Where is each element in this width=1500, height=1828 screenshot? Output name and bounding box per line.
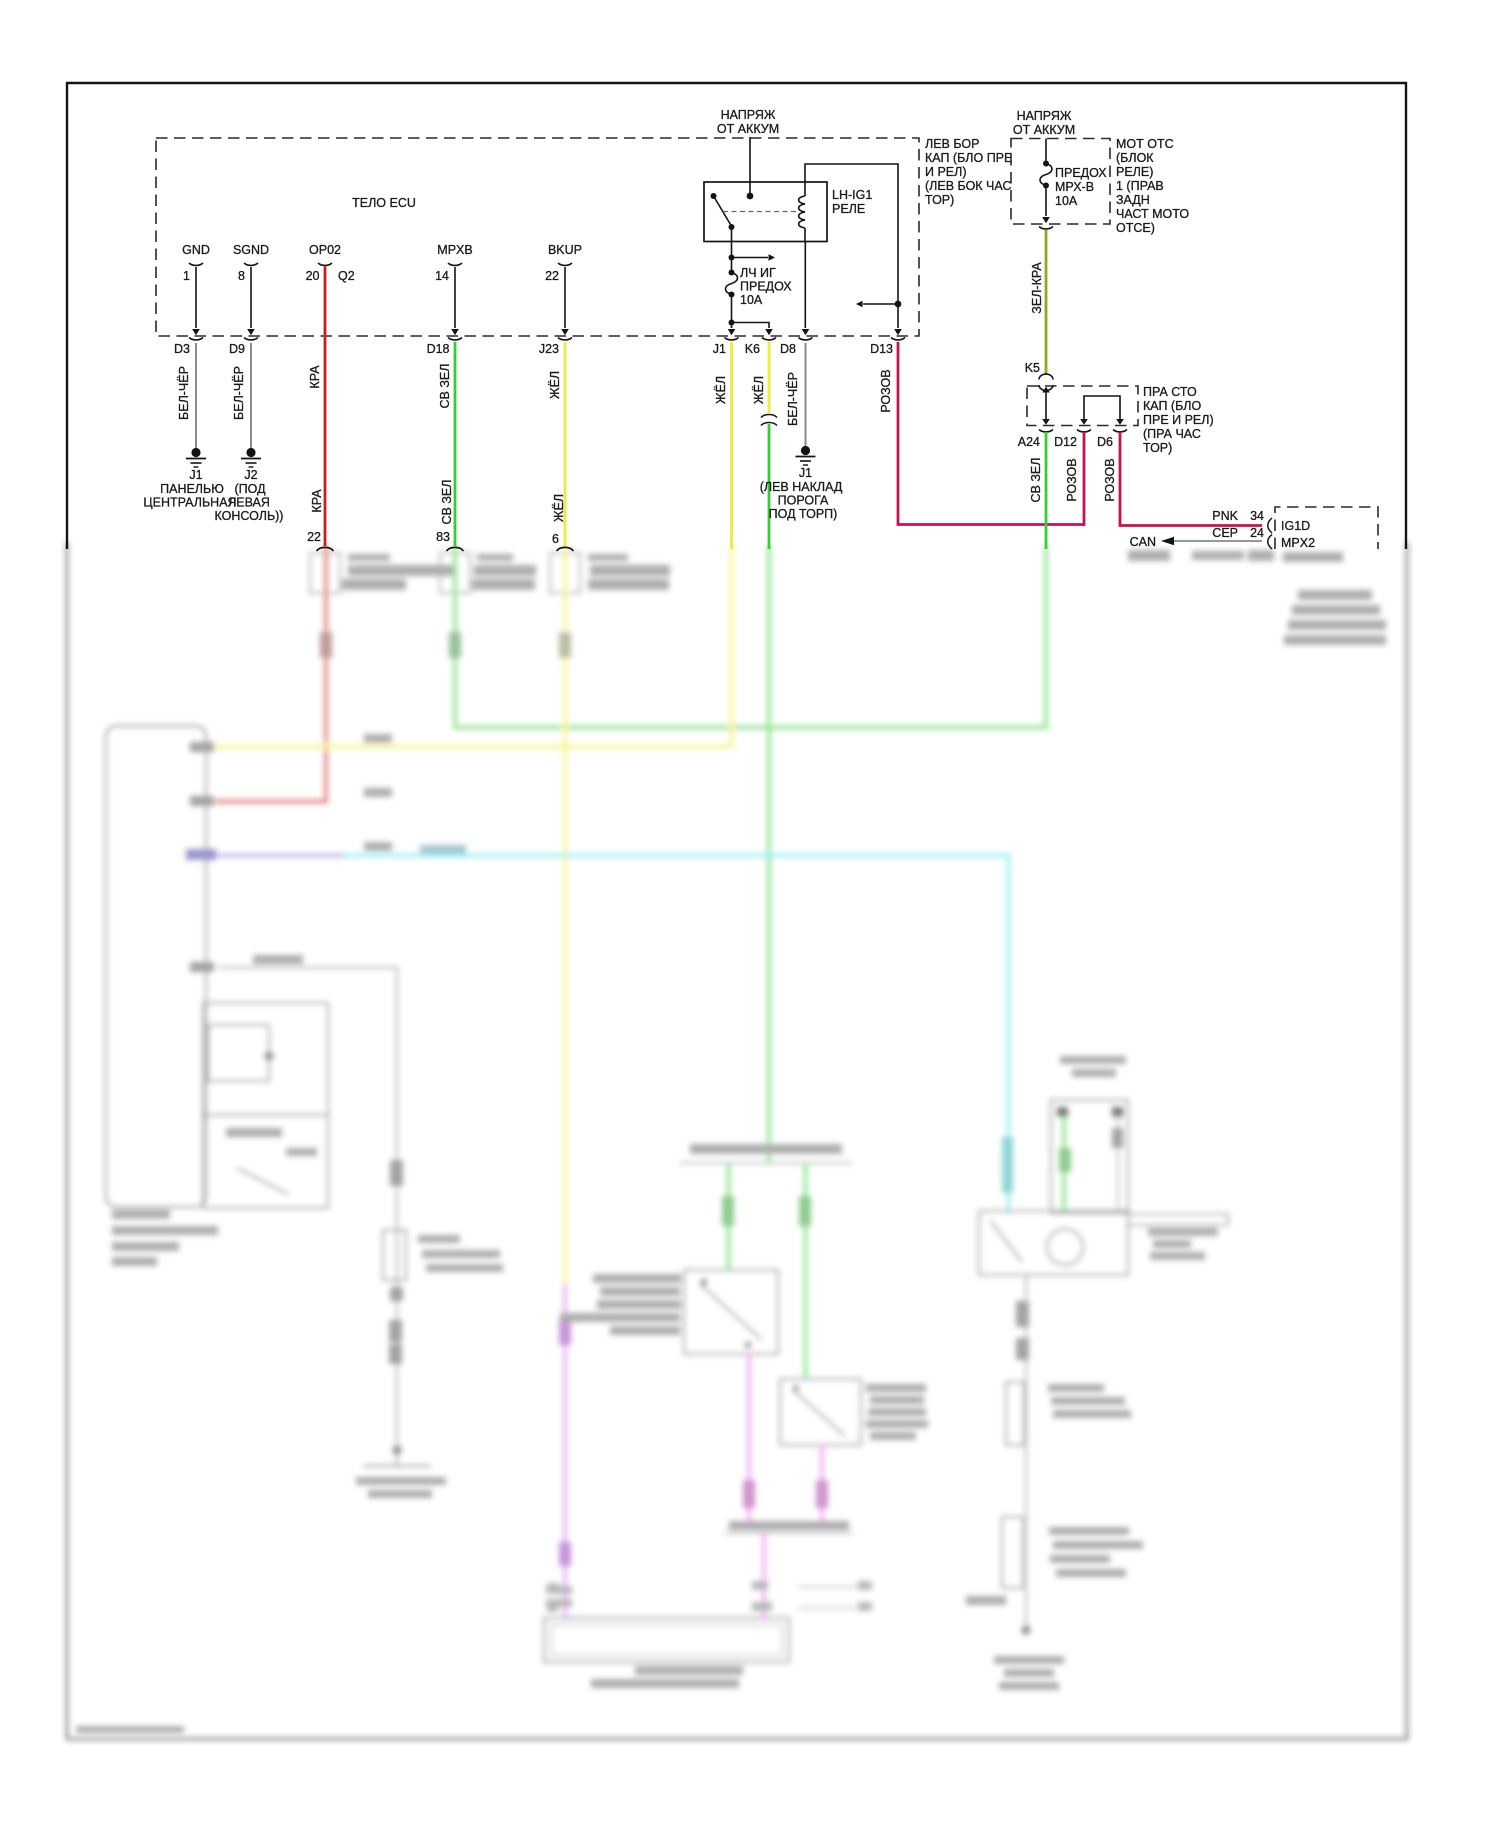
svg-text:КОНСОЛЬ)): КОНСОЛЬ)) [215, 509, 284, 523]
svg-text:83: 83 [436, 530, 450, 544]
svg-text:ЧАСТ МОТО: ЧАСТ МОТО [1116, 207, 1189, 221]
svg-text:ПРА СТО: ПРА СТО [1143, 385, 1197, 399]
svg-text:ТЕЛО ECU: ТЕЛО ECU [352, 196, 416, 210]
svg-text:OP02: OP02 [309, 243, 341, 257]
svg-text:D3: D3 [174, 342, 190, 356]
svg-text:БЕЛ-ЧЁР: БЕЛ-ЧЁР [786, 372, 800, 426]
svg-text:(ПОД: (ПОД [234, 482, 266, 496]
svg-text:D13: D13 [870, 342, 893, 356]
svg-text:ПРЕДОХ: ПРЕДОХ [1055, 166, 1107, 180]
svg-text:ЛЧ ИГ: ЛЧ ИГ [740, 266, 776, 280]
svg-text:ЛЕВ БОР: ЛЕВ БОР [925, 137, 979, 151]
svg-text:КАП (БЛО ПРЕ: КАП (БЛО ПРЕ [925, 151, 1012, 165]
svg-text:И РЕЛ): И РЕЛ) [925, 165, 967, 179]
svg-text:СВ ЗЕЛ: СВ ЗЕЛ [440, 480, 454, 525]
svg-text:CAN: CAN [1130, 535, 1156, 549]
svg-text:ПОД ТОРП): ПОД ТОРП) [769, 507, 838, 521]
svg-text:РЕЛЕ: РЕЛЕ [832, 202, 865, 216]
svg-text:K5: K5 [1025, 361, 1040, 375]
svg-text:ЖЁЛ: ЖЁЛ [714, 376, 728, 404]
svg-text:ПАНЕЛЬЮ: ПАНЕЛЬЮ [160, 482, 224, 496]
svg-text:LH-IG1: LH-IG1 [832, 188, 872, 202]
svg-text:СВ ЗЕЛ: СВ ЗЕЛ [1029, 458, 1043, 503]
svg-text:IG1D: IG1D [1281, 519, 1310, 533]
svg-text:НАПРЯЖ: НАПРЯЖ [1017, 109, 1072, 123]
svg-text:34: 34 [1250, 509, 1264, 523]
svg-text:НАПРЯЖ: НАПРЯЖ [721, 108, 776, 122]
svg-text:ОТСЕ): ОТСЕ) [1116, 221, 1155, 235]
svg-text:ЖЁЛ: ЖЁЛ [548, 371, 562, 399]
svg-text:(ЛЕВ БОК ЧАС: (ЛЕВ БОК ЧАС [925, 179, 1011, 193]
svg-text:MPX2: MPX2 [1281, 536, 1315, 550]
svg-text:ТОР): ТОР) [1143, 441, 1172, 455]
svg-text:ЖЁЛ: ЖЁЛ [552, 494, 566, 522]
svg-text:СВ ЗЕЛ: СВ ЗЕЛ [438, 364, 452, 409]
svg-text:МОТ ОТС: МОТ ОТС [1116, 137, 1174, 151]
svg-text:20: 20 [306, 269, 320, 283]
svg-text:GND: GND [182, 243, 210, 257]
svg-text:ПРЕ И РЕЛ): ПРЕ И РЕЛ) [1143, 413, 1214, 427]
svg-text:D12: D12 [1054, 435, 1077, 449]
svg-text:БЕЛ-ЧЁР: БЕЛ-ЧЁР [232, 366, 246, 420]
svg-text:ОТ АККУМ: ОТ АККУМ [1013, 123, 1075, 137]
svg-text:PNK: PNK [1212, 509, 1238, 523]
svg-text:ЗЕЛ-КРА: ЗЕЛ-КРА [1030, 262, 1044, 314]
svg-text:МРХ-В: МРХ-В [1055, 180, 1094, 194]
svg-text:1: 1 [183, 269, 190, 283]
svg-text:D6: D6 [1097, 435, 1113, 449]
svg-text:(ЛЕВ НАКЛАД: (ЛЕВ НАКЛАД [760, 480, 843, 494]
svg-text:(ПРА ЧАС: (ПРА ЧАС [1143, 427, 1201, 441]
svg-text:22: 22 [307, 530, 321, 544]
svg-text:D9: D9 [229, 342, 245, 356]
svg-text:J1: J1 [799, 466, 812, 480]
svg-text:A24: A24 [1018, 435, 1040, 449]
svg-text:SGND: SGND [233, 243, 269, 257]
svg-text:КРА: КРА [310, 489, 324, 513]
svg-text:10А: 10А [740, 293, 763, 307]
svg-text:MPXB: MPXB [437, 243, 472, 257]
svg-text:D18: D18 [427, 342, 450, 356]
svg-text:ЛЕВАЯ: ЛЕВАЯ [228, 496, 270, 510]
svg-text:J1: J1 [189, 468, 202, 482]
svg-text:J1: J1 [713, 342, 726, 356]
svg-text:J2: J2 [244, 468, 257, 482]
svg-text:22: 22 [545, 269, 559, 283]
svg-text:1 (ПРАВ: 1 (ПРАВ [1116, 179, 1164, 193]
svg-text:ПРЕДОХ: ПРЕДОХ [740, 280, 792, 294]
svg-text:24: 24 [1250, 526, 1264, 540]
svg-text:ОТ АККУМ: ОТ АККУМ [717, 122, 779, 136]
svg-text:14: 14 [435, 269, 449, 283]
svg-text:K6: K6 [745, 342, 760, 356]
svg-text:10А: 10А [1055, 194, 1078, 208]
svg-text:РЕЛЕ): РЕЛЕ) [1116, 165, 1153, 179]
svg-text:БЕЛ-ЧЁР: БЕЛ-ЧЁР [177, 366, 191, 420]
svg-text:BKUP: BKUP [548, 243, 582, 257]
svg-text:(БЛОК: (БЛОК [1116, 151, 1154, 165]
svg-text:ЖЁЛ: ЖЁЛ [752, 376, 766, 404]
svg-text:ТОР): ТОР) [925, 193, 954, 207]
svg-text:ЗАДН: ЗАДН [1116, 193, 1150, 207]
svg-text:8: 8 [238, 269, 245, 283]
svg-text:D8: D8 [780, 342, 796, 356]
svg-text:СЕР: СЕР [1212, 526, 1238, 540]
svg-text:6: 6 [552, 532, 559, 546]
svg-text:РОЗОВ: РОЗОВ [879, 369, 893, 412]
svg-text:КРА: КРА [308, 365, 322, 389]
svg-text:Q2: Q2 [338, 269, 355, 283]
svg-text:ЦЕНТРАЛЬНАЯ: ЦЕНТРАЛЬНАЯ [143, 496, 236, 510]
svg-text:КАП (БЛО: КАП (БЛО [1143, 399, 1202, 413]
svg-text:РОЗОВ: РОЗОВ [1065, 458, 1079, 501]
svg-text:ПОРОГА: ПОРОГА [778, 494, 829, 508]
svg-text:J23: J23 [539, 342, 559, 356]
svg-text:РОЗОВ: РОЗОВ [1103, 458, 1117, 501]
